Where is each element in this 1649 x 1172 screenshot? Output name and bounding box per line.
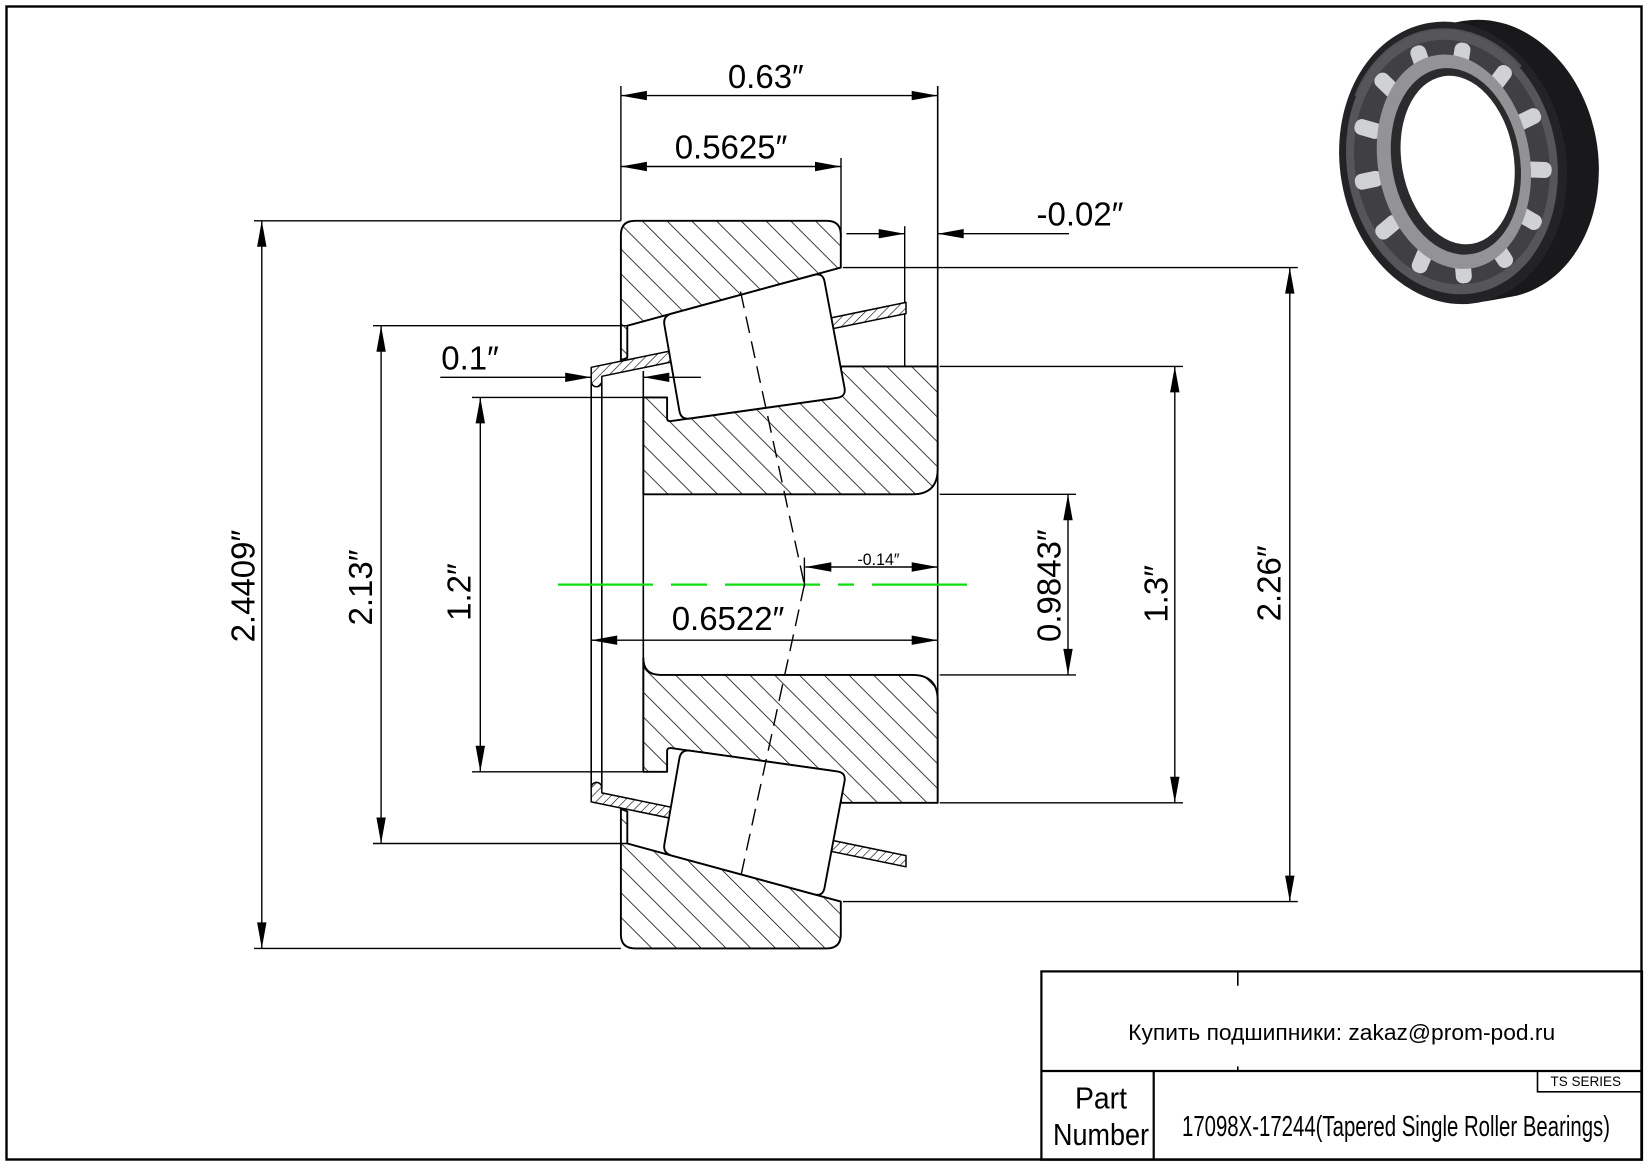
svg-text:0.63″: 0.63″	[728, 58, 804, 95]
svg-text:0.6522″: 0.6522″	[672, 600, 785, 637]
svg-text:2.26″: 2.26″	[1251, 545, 1288, 621]
svg-text:-0.14″: -0.14″	[858, 550, 900, 569]
svg-text:Number: Number	[1053, 1118, 1149, 1152]
svg-text:0.1″: 0.1″	[441, 340, 499, 377]
svg-text:17098X-17244(Tapered Single Ro: 17098X-17244(Tapered Single Roller Beari…	[1182, 1111, 1610, 1143]
svg-text:Купить подшипники: zakaz@prom-: Купить подшипники: zakaz@prom-pod.ru	[1128, 1020, 1555, 1045]
svg-text:1.2″: 1.2″	[441, 563, 478, 621]
svg-text:-0.02″: -0.02″	[1037, 195, 1124, 232]
svg-text:TS SERIES: TS SERIES	[1551, 1074, 1622, 1089]
svg-text:2.13″: 2.13″	[342, 549, 379, 625]
svg-text:2.4409″: 2.4409″	[225, 529, 262, 642]
svg-text:0.5625″: 0.5625″	[675, 129, 788, 166]
svg-text:Part: Part	[1075, 1082, 1127, 1116]
svg-text:1.3″: 1.3″	[1138, 565, 1175, 623]
svg-text:0.9843″: 0.9843″	[1031, 529, 1068, 642]
